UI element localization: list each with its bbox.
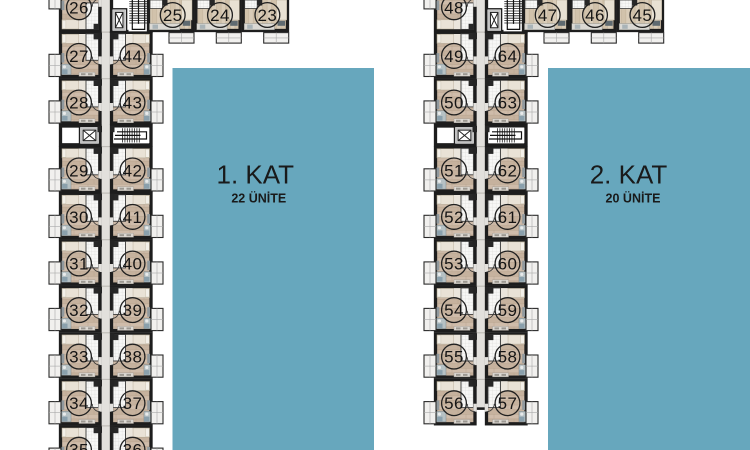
svg-text:22 ÜNİTE: 22 ÜNİTE bbox=[231, 191, 286, 206]
svg-text:34: 34 bbox=[69, 394, 89, 413]
svg-text:36: 36 bbox=[123, 441, 143, 450]
svg-text:63: 63 bbox=[498, 94, 518, 113]
svg-text:54: 54 bbox=[444, 301, 464, 320]
svg-text:39: 39 bbox=[123, 301, 143, 320]
svg-text:47: 47 bbox=[538, 6, 558, 25]
svg-text:55: 55 bbox=[444, 348, 464, 367]
svg-text:29: 29 bbox=[69, 161, 89, 180]
svg-text:32: 32 bbox=[69, 301, 89, 320]
svg-text:25: 25 bbox=[163, 6, 183, 25]
svg-text:53: 53 bbox=[444, 255, 464, 274]
svg-text:38: 38 bbox=[123, 348, 143, 367]
svg-text:56: 56 bbox=[444, 394, 464, 413]
svg-text:30: 30 bbox=[69, 208, 89, 227]
svg-text:2. KAT: 2. KAT bbox=[590, 159, 668, 189]
svg-text:31: 31 bbox=[69, 255, 89, 274]
svg-text:24: 24 bbox=[210, 6, 230, 25]
svg-text:43: 43 bbox=[123, 94, 143, 113]
svg-text:27: 27 bbox=[69, 47, 89, 66]
svg-text:62: 62 bbox=[498, 161, 518, 180]
svg-text:33: 33 bbox=[69, 348, 89, 367]
svg-text:61: 61 bbox=[498, 208, 518, 227]
svg-text:52: 52 bbox=[444, 208, 464, 227]
svg-text:41: 41 bbox=[123, 208, 143, 227]
svg-text:59: 59 bbox=[498, 301, 518, 320]
svg-text:42: 42 bbox=[123, 161, 143, 180]
svg-text:35: 35 bbox=[69, 441, 89, 450]
svg-text:20 ÜNİTE: 20 ÜNİTE bbox=[606, 191, 661, 206]
svg-text:57: 57 bbox=[498, 394, 518, 413]
svg-text:28: 28 bbox=[69, 94, 89, 113]
svg-text:46: 46 bbox=[585, 6, 605, 25]
svg-text:23: 23 bbox=[258, 6, 278, 25]
svg-text:48: 48 bbox=[444, 0, 464, 17]
svg-text:50: 50 bbox=[444, 94, 464, 113]
svg-text:58: 58 bbox=[498, 348, 518, 367]
svg-text:60: 60 bbox=[498, 255, 518, 274]
svg-text:49: 49 bbox=[444, 47, 464, 66]
svg-text:37: 37 bbox=[123, 394, 143, 413]
svg-text:1. KAT: 1. KAT bbox=[217, 159, 295, 189]
svg-text:45: 45 bbox=[633, 6, 653, 25]
svg-text:26: 26 bbox=[69, 0, 89, 17]
svg-text:44: 44 bbox=[123, 47, 143, 66]
svg-text:51: 51 bbox=[444, 161, 464, 180]
svg-text:40: 40 bbox=[123, 255, 143, 274]
svg-text:64: 64 bbox=[498, 47, 518, 66]
